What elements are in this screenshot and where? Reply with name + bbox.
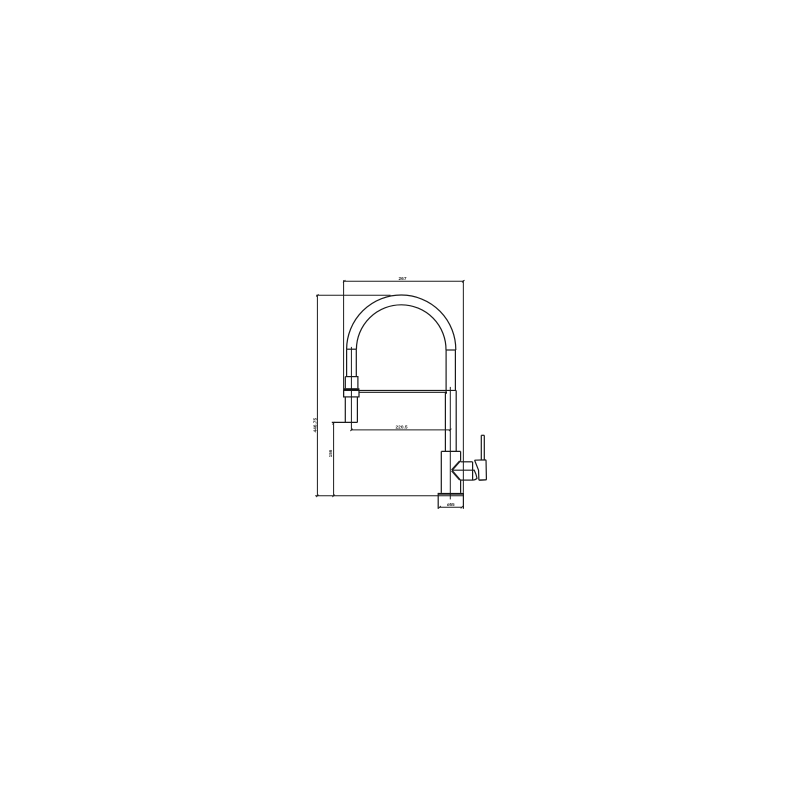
svg-text:446.75: 446.75 — [312, 418, 318, 433]
svg-text:ø55: ø55 — [447, 502, 455, 507]
svg-text:220.5: 220.5 — [395, 424, 407, 430]
svg-text:267: 267 — [398, 276, 406, 282]
svg-text:156: 156 — [328, 449, 333, 457]
